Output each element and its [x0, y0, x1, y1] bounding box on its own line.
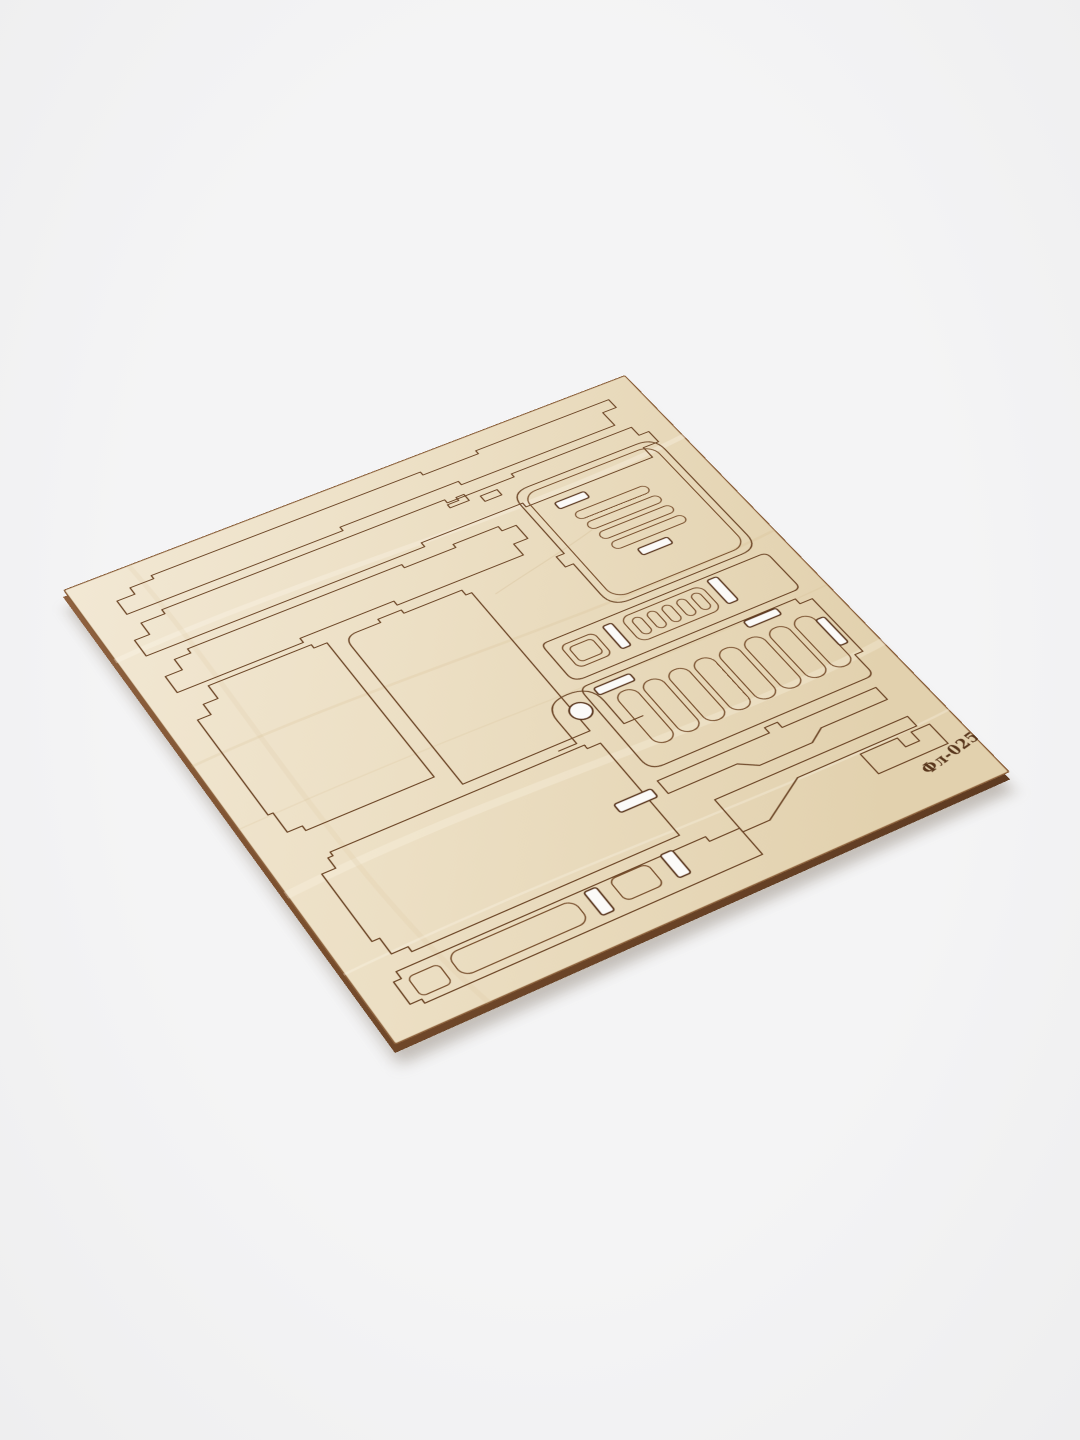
board-face [64, 376, 1009, 1045]
product-photo: Фл-025-2 [0, 0, 1080, 1440]
plywood-board: Фл-025-2 [63, 375, 1010, 1045]
laser-cut-pattern: Фл-025-2 [63, 375, 1010, 1045]
